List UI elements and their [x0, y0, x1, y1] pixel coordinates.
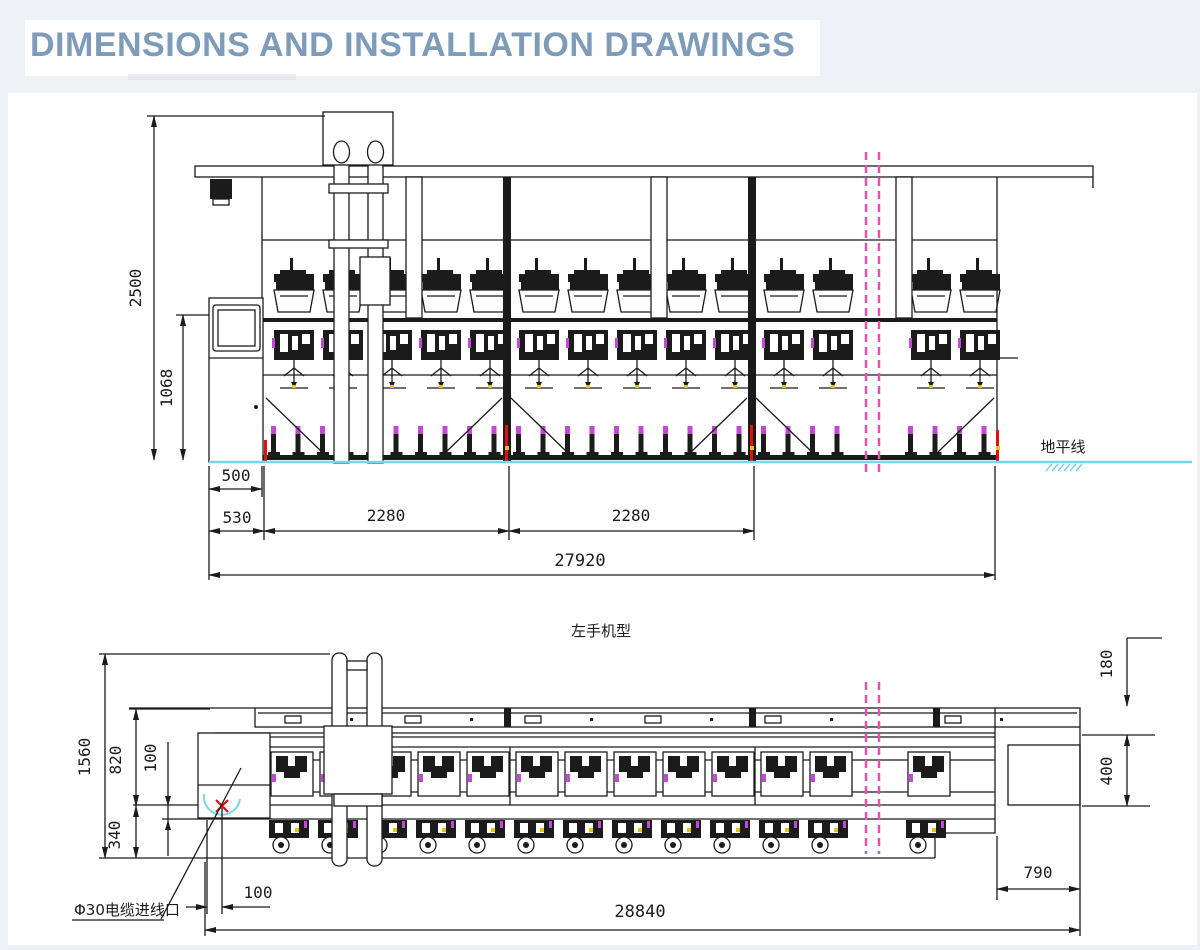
unitFoot-instance [611, 426, 623, 457]
unitB-instance [272, 330, 314, 388]
unitC-instance [269, 820, 309, 853]
section-post [503, 177, 511, 462]
unitP-instance [761, 752, 803, 796]
unitP-instance [516, 752, 558, 796]
dim-plan-overall-length: 28840 [614, 902, 665, 922]
top-beam [195, 166, 1093, 177]
unitC-instance [906, 820, 946, 853]
machine-side-view: 地平线 [195, 112, 1192, 476]
dim-top-offset: 180 [1097, 650, 1116, 679]
unitFoot-instance [293, 426, 305, 457]
dim-cabinet-width: 500 [222, 466, 251, 485]
unitB-instance [958, 330, 1000, 388]
bottom-drawing-plan-view: 左手机型 [72, 622, 1162, 936]
unitFoot-instance [636, 426, 648, 457]
beam-motor [210, 179, 232, 199]
unitFoot-instance [832, 426, 844, 457]
rail-extension-box [1008, 745, 1080, 805]
unitC-instance [759, 820, 799, 853]
dim-rail-offset: 340 [105, 821, 124, 850]
installation-diagram: 地平线 2500 1068 [0, 0, 1200, 950]
unitA-instance [568, 258, 608, 312]
unitFoot-instance [415, 426, 427, 457]
unitA-instance [421, 258, 461, 312]
unitFoot-instance [489, 426, 501, 457]
unitC-instance [563, 820, 603, 853]
dim-head-section: 530 [223, 508, 252, 527]
unitA-instance [960, 258, 1000, 312]
unitP-instance [712, 752, 754, 796]
unitFoot-instance [513, 426, 525, 457]
unitC-instance [710, 820, 750, 853]
unitB-instance [909, 330, 951, 388]
unitP-instance [810, 752, 852, 796]
unitB-instance [517, 330, 559, 388]
dim-overall-width: 1560 [75, 738, 94, 777]
unitB-instance [811, 330, 853, 388]
control-cabinet [209, 298, 263, 462]
unitFoot-instance [562, 426, 574, 457]
unitA-instance [666, 258, 706, 312]
unitB-instance [419, 330, 461, 388]
unitC-instance [612, 820, 652, 853]
dim-section-a: 2280 [367, 506, 406, 525]
unitFoot-instance [440, 426, 452, 457]
unitC-instance [808, 820, 848, 853]
unitP-instance [271, 752, 313, 796]
dim-rail-extension: 790 [1024, 863, 1053, 882]
unitP-instance [467, 752, 509, 796]
unitFoot-instance [905, 426, 917, 457]
dim-frame-width: 820 [106, 746, 125, 775]
unitFoot-instance [979, 426, 991, 457]
unitA-instance [911, 258, 951, 312]
unitP-instance [663, 752, 705, 796]
unitC-instance [416, 820, 456, 853]
cabinet-handle [254, 405, 258, 409]
dim-rail-width: 400 [1097, 757, 1116, 786]
dim-overall-height: 2500 [126, 269, 145, 308]
unitA-instance [764, 258, 804, 312]
unitB-instance [664, 330, 706, 388]
unitFoot-instance [464, 426, 476, 457]
unitFoot-instance [660, 426, 672, 457]
dim-inner-offset: 100 [141, 744, 160, 773]
unitFoot-instance [538, 426, 550, 457]
ground-line-label: 地平线 [1040, 438, 1085, 456]
unitP-instance [908, 752, 950, 796]
dim-overall-length: 27920 [554, 551, 605, 571]
plan-view-title: 左手机型 [571, 622, 631, 640]
unitP-instance [565, 752, 607, 796]
unitC-instance [661, 820, 701, 853]
cable-entry-note: Φ30电缆进线口 [74, 901, 180, 919]
unitB-instance [566, 330, 608, 388]
unitFoot-instance [783, 426, 795, 457]
unitP-instance [418, 752, 460, 796]
dim-section-b: 2280 [612, 506, 651, 525]
top-drawing-side-elevation: 地平线 2500 1068 [126, 112, 1192, 580]
unitFoot-instance [930, 426, 942, 457]
unitP-instance [614, 752, 656, 796]
dim-cable-offset: 100 [244, 883, 273, 902]
unitFoot-instance [587, 426, 599, 457]
machine-plan-view [99, 653, 1080, 866]
unitA-instance [813, 258, 853, 312]
dim-spindle-height: 1068 [157, 369, 176, 408]
unitC-instance [514, 820, 554, 853]
headstock-plan [198, 733, 270, 818]
unitFoot-instance [709, 426, 721, 457]
unitA-instance [519, 258, 559, 312]
unitB-instance [615, 330, 657, 388]
unitFoot-instance [758, 426, 770, 457]
unitFoot-instance [685, 426, 697, 457]
section-post [748, 177, 756, 462]
unitFoot-instance [317, 426, 329, 457]
unitFoot-instance [734, 426, 746, 457]
unitFoot-instance [268, 426, 280, 457]
unitFoot-instance [391, 426, 403, 457]
unitB-instance [762, 330, 804, 388]
unitA-instance [274, 258, 314, 312]
break-lines [866, 152, 879, 476]
unitC-instance [465, 820, 505, 853]
unitFoot-instance [807, 426, 819, 457]
